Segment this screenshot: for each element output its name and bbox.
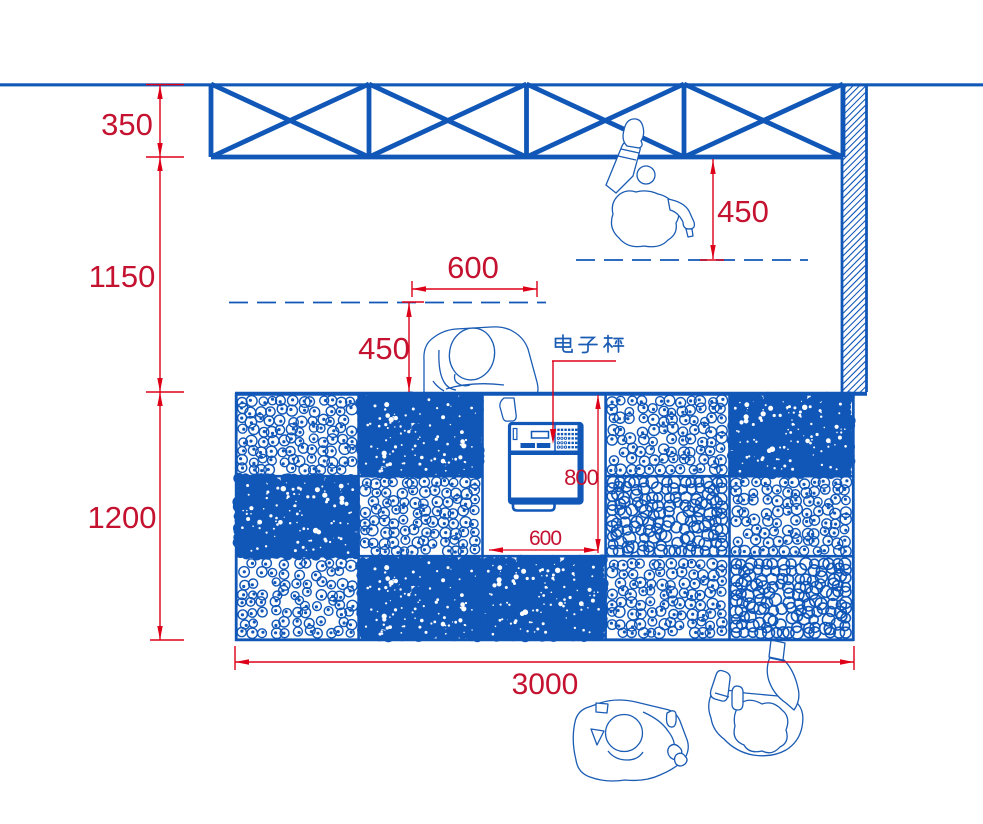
svg-text:450: 450 [358, 331, 410, 366]
svg-text:350: 350 [101, 107, 153, 142]
svg-text:1200: 1200 [88, 500, 157, 535]
svg-text:800: 800 [564, 465, 598, 490]
svg-text:3000: 3000 [512, 668, 579, 701]
svg-text:450: 450 [717, 194, 769, 229]
svg-text:600: 600 [447, 250, 499, 285]
svg-text:1150: 1150 [89, 259, 156, 294]
svg-text:600: 600 [529, 527, 561, 550]
